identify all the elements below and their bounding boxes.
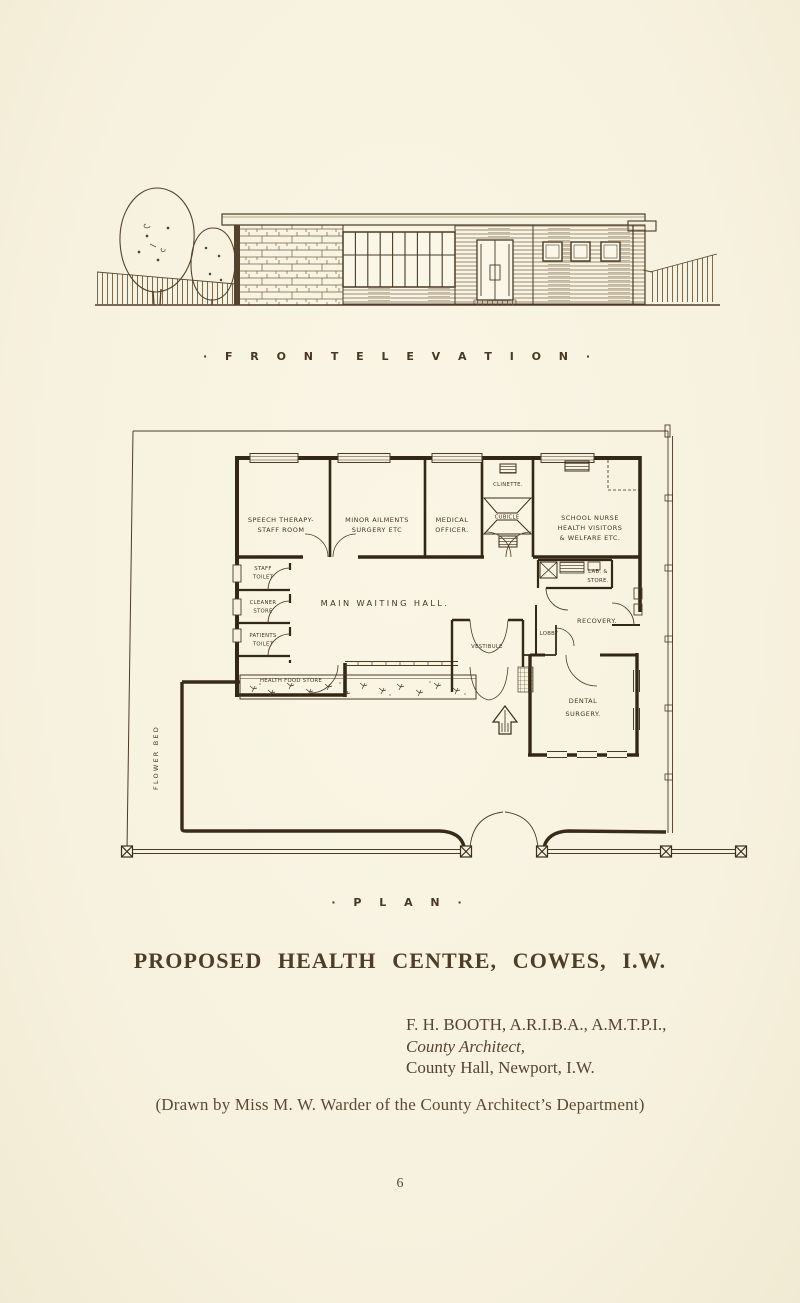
label-health-food-store: HEALTH FOOD STORE: [260, 678, 322, 684]
svg-text:HEALTH VISITORS: HEALTH VISITORS: [558, 524, 623, 532]
label-patients-toilet: PATIENTS: [249, 633, 277, 639]
page-title: PROPOSED HEALTH CENTRE, COWES, I.W.: [0, 948, 800, 974]
right-fence-posts: [665, 495, 673, 780]
label-dental-surgery: DENTAL: [569, 697, 598, 705]
svg-text:& WELFARE ETC.: & WELFARE ETC.: [560, 534, 621, 542]
label-minor-ailments: MINOR AILMENTS: [345, 516, 409, 524]
label-cleaner-store: CLEANER: [250, 600, 277, 606]
west-wall-windows: [233, 565, 241, 642]
label-cubicle: CUBICLE: [495, 515, 520, 521]
svg-text:SURGERY ETC: SURGERY ETC: [352, 526, 402, 534]
wall-reveal: [234, 225, 240, 305]
architect-credit: F. H. BOOTH, A.R.I.B.A., A.M.T.P.I., Cou…: [406, 1014, 666, 1079]
svg-text:STAFF ROOM: STAFF ROOM: [258, 526, 305, 534]
label-lab-store: LAB. &: [588, 569, 608, 575]
label-speech-therapy: SPEECH THERAPY-: [248, 516, 314, 524]
label-recovery: RECOVERY.: [577, 617, 617, 625]
label-clinette: CLINETTE.: [493, 482, 523, 488]
elevation-caption: · F R O N T E L E V A T I O N ·: [0, 350, 800, 363]
svg-text:TOILET: TOILET: [252, 642, 274, 648]
architect-name: F. H. BOOTH, A.R.I.B.A., A.M.T.P.I.,: [406, 1014, 666, 1036]
entrance-gate: [470, 812, 538, 849]
entrance-section: [455, 225, 533, 305]
stone-wall: [234, 225, 343, 305]
svg-text:TOILET: TOILET: [252, 575, 274, 581]
window-band: [343, 232, 455, 304]
plan-caption: · P L A N ·: [0, 896, 800, 909]
label-flower-bed: FLOWER BED: [152, 725, 160, 790]
label-waiting-hall: MAIN WAITING HALL.: [321, 598, 450, 608]
page-number: 6: [0, 1176, 800, 1192]
room-labels: SPEECH THERAPY- STAFF ROOM MINOR AILMENT…: [152, 482, 622, 790]
boundary-posts: [122, 846, 747, 857]
label-staff-toilet: STAFF: [254, 566, 271, 572]
svg-text:STORE.: STORE.: [587, 578, 608, 584]
svg-text:STORE: STORE: [253, 609, 273, 615]
architect-address: County Hall, Newport, I.W.: [406, 1057, 666, 1079]
garden-wall: [182, 682, 666, 847]
svg-text:OFFICER.: OFFICER.: [435, 526, 469, 534]
svg-text:SURGERY.: SURGERY.: [565, 710, 600, 718]
square-windows: [543, 242, 620, 261]
label-school-nurse: SCHOOL NURSE: [561, 514, 619, 522]
entrance-steps: [518, 667, 533, 692]
site-boundary: [127, 425, 745, 854]
right-fence: [643, 254, 717, 302]
book-page: · F R O N T E L E V A T I O N ·: [0, 0, 800, 1303]
label-lobby: LOBBY: [540, 631, 559, 637]
wood-clad-section: [533, 225, 645, 304]
north-arrow-icon: [493, 706, 517, 734]
bottom-fence-line: [127, 850, 745, 854]
label-medical-officer: MEDICAL: [436, 516, 469, 524]
drawn-by-line: (Drawn by Miss M. W. Warder of the Count…: [0, 1095, 800, 1115]
label-vestibule: VESTIBULE: [471, 644, 503, 650]
front-elevation-drawing: [0, 148, 800, 318]
floor-plan-drawing: SPEECH THERAPY- STAFF ROOM MINOR AILMENT…: [0, 420, 800, 880]
right-fence-line: [668, 431, 673, 833]
architect-role: County Architect,: [406, 1036, 666, 1058]
door-threshold: [474, 300, 516, 305]
